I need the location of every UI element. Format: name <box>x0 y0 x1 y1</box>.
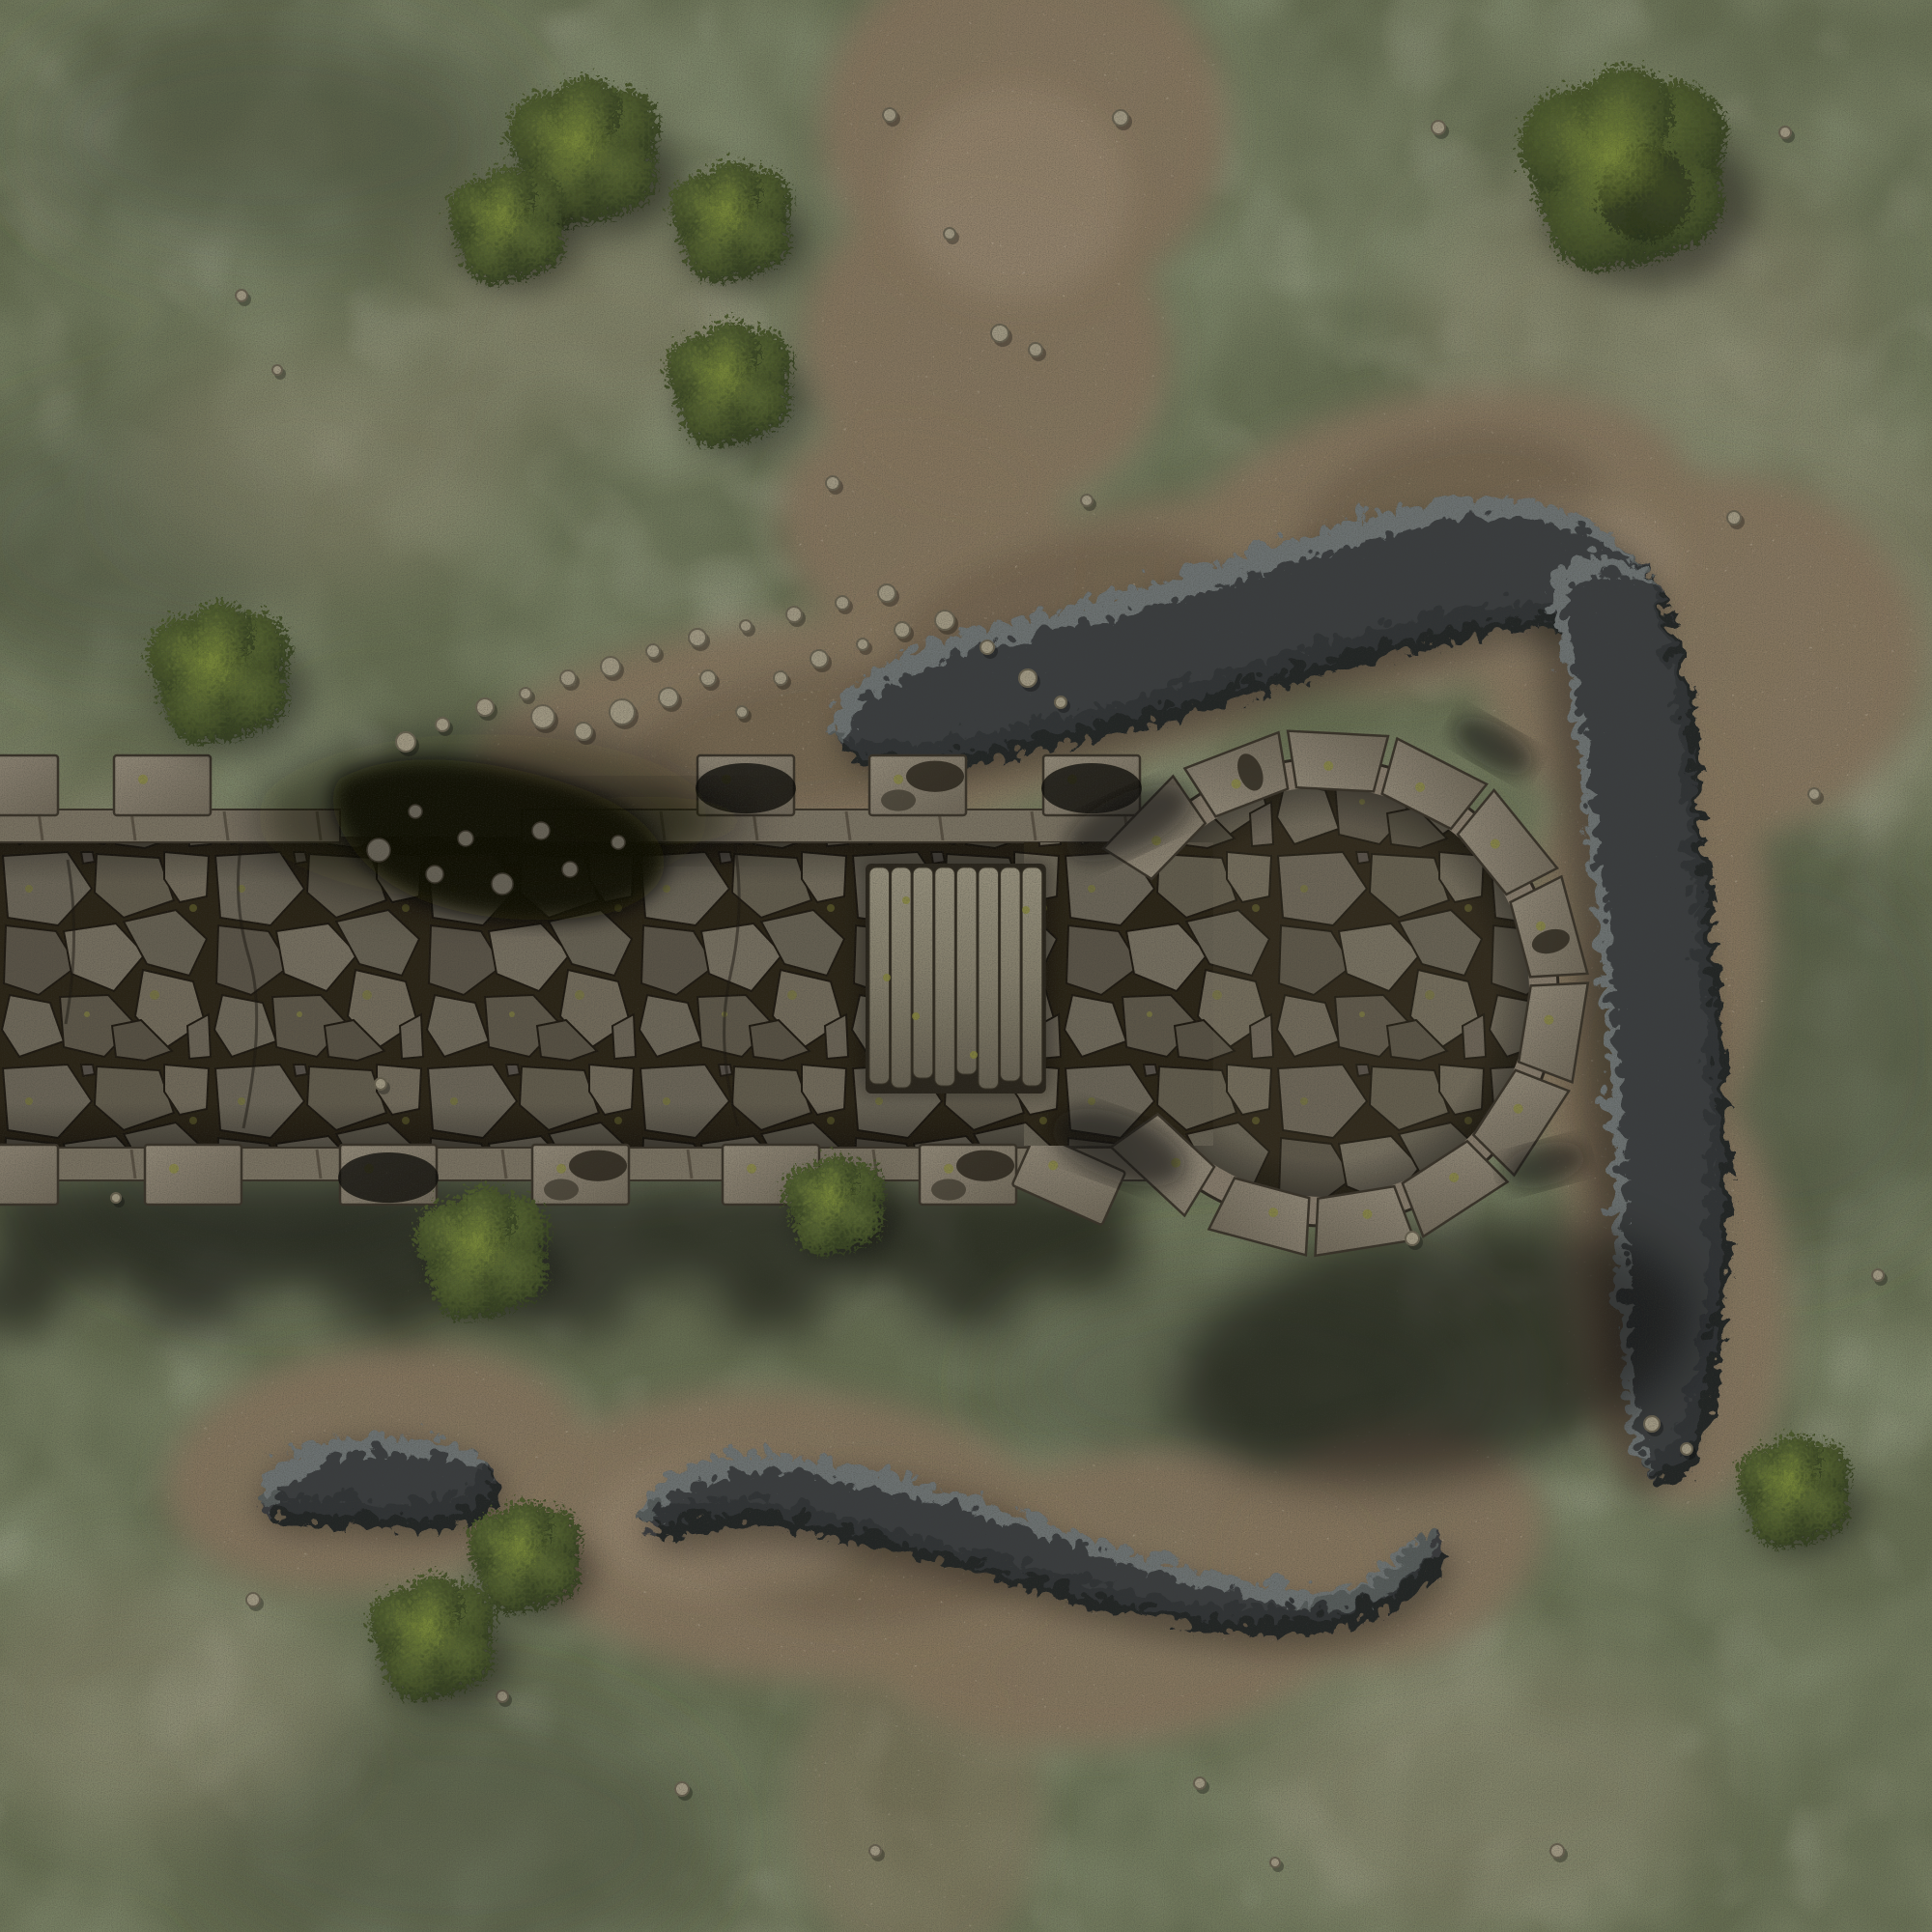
battlemap-canvas: Ruined crenellated stone rampart with ro… <box>0 0 1932 1932</box>
battlemap-image: Ruined crenellated stone rampart with ro… <box>0 0 1932 1932</box>
color-cast-overlay <box>0 0 1932 1932</box>
